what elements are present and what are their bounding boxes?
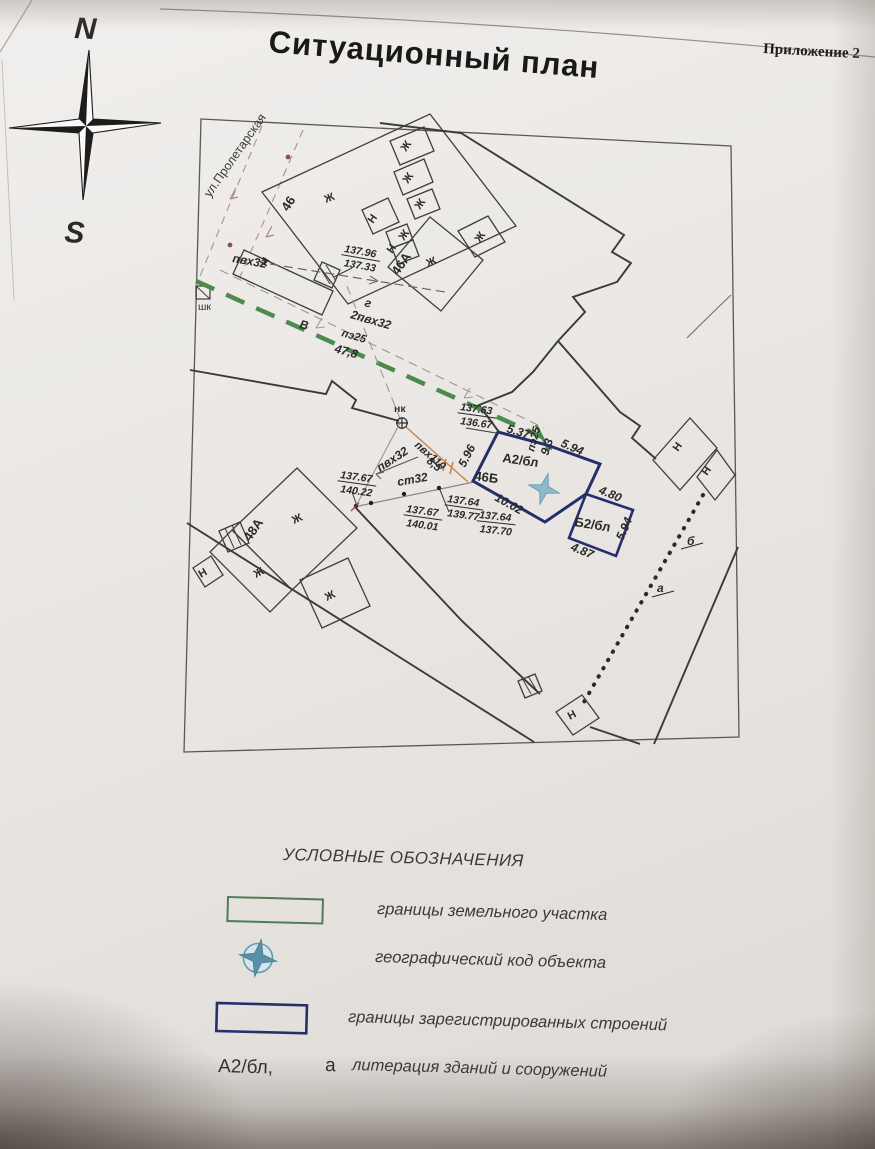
letter-zh: Ж [400,171,416,187]
plan-canvas: Ситуационный план Приложение 2 N S ул.Пр… [0,0,875,1149]
label-st32: ст32 [396,470,429,489]
legend-item-litera: А2/бл, а литерация зданий и сооружений [218,1055,607,1081]
litera-sample-main: А2/бл, [218,1056,273,1078]
letter-n: Н [197,566,210,580]
elevation-6: 137.64 137.70 [475,509,517,539]
label-b2bl: Б2/бл [574,514,612,534]
street-name-label: ул.Пролетарская [201,111,269,200]
label-shk: шк [198,301,211,313]
label-g: г [363,295,373,310]
label-pvh32-top: пвх32 [231,251,268,271]
legend-label-litera: литерация зданий и сооружений [351,1056,607,1081]
letter-n: Н [700,464,714,477]
letter-n: Н [671,440,685,453]
elevation-bottom: 140.01 [406,517,440,533]
buildings-right [653,418,735,500]
annex-label: Приложение 2 [763,41,860,62]
dim-4-87: 4.87 [568,539,597,562]
letter-zh: Ж [251,565,266,581]
letter-zh: Ж [472,230,488,246]
elevation-bottom: 139.77 [447,507,482,524]
elevation-1: 137.96 137.33 [339,243,382,275]
letter-zh: Ж [322,589,337,605]
compass-north-label: N [74,12,99,46]
elevation-bottom: 140.22 [340,483,374,499]
letter-zh: Ж [289,512,304,528]
elevation-bottom: 137.70 [479,523,512,538]
elevation-3: 137.67 140.22 [336,469,378,500]
parcel-boundaries [187,123,738,744]
compass-rose: N S [9,12,161,250]
geo-code-star [529,474,560,505]
registered-buildings-swatch [216,1003,307,1033]
legend-title: УСЛОВНЫЕ ОБОЗНАЧЕНИЯ [282,845,524,870]
label-47-8: 47,8 [332,341,360,361]
legend-item-registered: границы зарегистрированных строений [216,1003,667,1034]
label-48a: 48А [240,515,266,544]
label-lit-a: а [657,581,664,595]
litera-sample-small: а [325,1055,337,1076]
parcel-boundary-swatch [227,897,323,923]
label-a2bl: А2/бл [502,450,540,470]
scanned-situation-plan-page: { "page": { "title": "Ситуационный план"… [0,0,875,1149]
letter-n: Н [566,708,579,722]
legend-item-geocode: географический код объекта [239,939,606,976]
letter-zh: Ж [322,191,337,206]
building-bottom [518,674,599,735]
building-right-n2 [697,450,735,500]
legend-label-registered: границы зарегистрированных строений [348,1008,667,1034]
label-v: В [298,317,310,333]
label-nk: нк [394,403,406,415]
label-46: 46 [278,193,298,213]
letter-zh: Ж [398,139,414,155]
legend-label-parcel: границы земельного участка [377,900,608,924]
dim-5-94b: 5.94 [613,515,635,542]
letter-n: Н [385,242,399,255]
elevation-2: 137.63 136.67 [456,401,498,432]
legend-item-parcel: границы земельного участка [227,897,607,924]
letter-zh: Ж [412,197,428,213]
label-lit-b: б [687,534,695,548]
building-right-n1 [653,418,717,490]
elevation-top: 137.64 [479,509,512,524]
dim-5-96: 5.96 [455,442,478,469]
building-bottom-n [556,695,599,735]
page-title: Ситуационный план [267,24,600,85]
label-2pvh32: 2пвх32 [348,307,393,332]
elevation-4: 137.67 140.01 [402,503,444,534]
compass-south-label: S [64,216,86,250]
legend-label-geocode: географический код объекта [375,948,606,972]
buildings-46-cluster [233,114,516,315]
label-pvh32-bottom: пвх32 [374,444,411,475]
